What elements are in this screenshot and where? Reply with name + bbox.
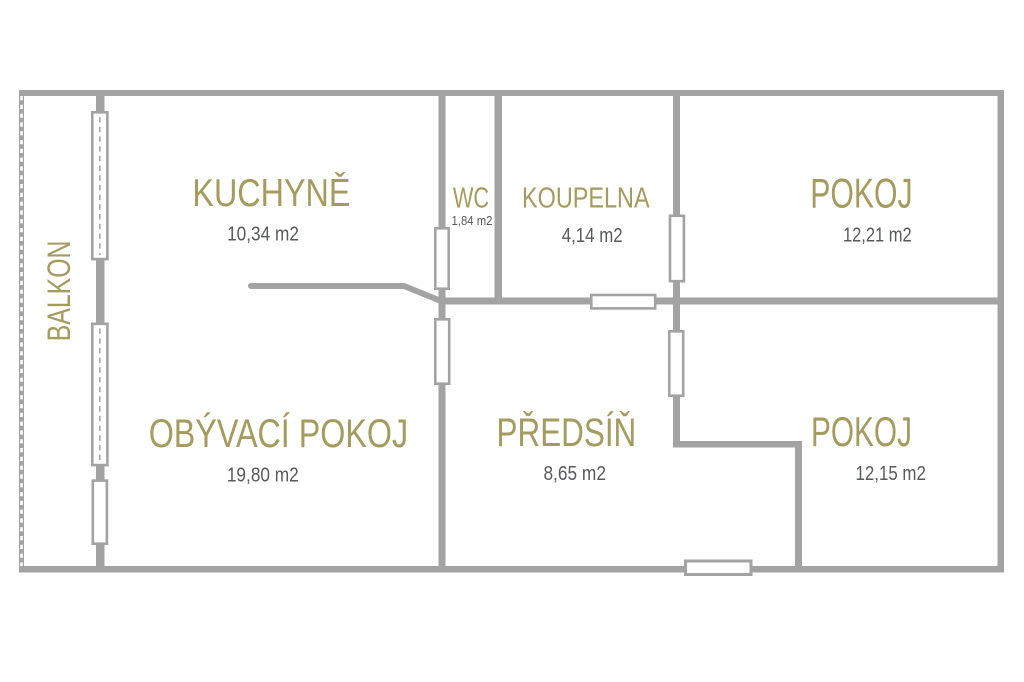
svg-text:BALKON: BALKON: [41, 241, 77, 342]
svg-text:10,34 m2: 10,34 m2: [227, 224, 299, 246]
svg-text:4,14 m2: 4,14 m2: [562, 225, 623, 247]
svg-text:1,84 m2: 1,84 m2: [452, 213, 493, 228]
svg-text:POKOJ: POKOJ: [811, 408, 912, 455]
svg-text:19,80 m2: 19,80 m2: [227, 464, 299, 486]
svg-text:KOUPELNA: KOUPELNA: [522, 183, 650, 215]
svg-text:12,15 m2: 12,15 m2: [856, 463, 926, 485]
svg-text:POKOJ: POKOJ: [810, 170, 912, 217]
svg-text:WC: WC: [453, 183, 489, 215]
svg-text:PŘEDSÍŇ: PŘEDSÍŇ: [497, 411, 637, 455]
svg-text:12,21 m2: 12,21 m2: [843, 224, 912, 246]
svg-text:8,65 m2: 8,65 m2: [543, 463, 606, 485]
svg-text:KUCHYNĚ: KUCHYNĚ: [192, 172, 350, 215]
svg-text:OBÝVACÍ POKOJ: OBÝVACÍ POKOJ: [149, 411, 408, 456]
